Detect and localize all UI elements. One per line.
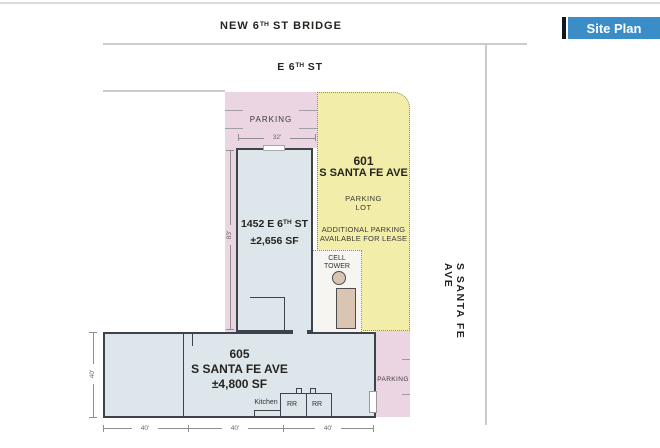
b1452-interior-wall-h [250,297,285,298]
top-border-line [0,2,660,4]
b1452-address-text2: ST [292,218,308,230]
dim-tick [188,425,189,432]
rr2-label: RR [309,401,325,409]
e6th-label-sup: TH [295,62,304,69]
right-parking-label-text: PARKING [377,376,409,383]
cell-tower-label2: TOWER [313,263,361,271]
right-parking-label: PARKING [376,376,410,383]
top-parking-label: PARKING [225,115,317,124]
lot-601-use1: PARKING [317,194,410,203]
kitchen-wall-h [254,410,281,411]
kitchen-label-text: Kitchen [254,399,277,406]
rr-door-notch [296,388,302,393]
dim-bottom-3-text: 40' [324,425,332,432]
e6th-street-line [103,90,225,92]
b605-wall-stub [192,334,193,346]
dim-label-32: 32' [264,134,290,142]
right-parking-zone [376,331,410,417]
building-1452-label: 1452 E 6TH ST ±2,656 SF [236,218,313,248]
parking-stall-line [299,110,317,111]
top-parking-label-text: PARKING [250,115,292,124]
cell-tower-circle [332,271,346,285]
dim-label-83: 83' [226,225,234,245]
kitchen-wall-v2 [254,410,255,418]
lot-601-note2: AVAILABLE FOR LEASE [317,234,410,243]
site-plan-page: NEW 6TH ST BRIDGE Site Plan E 6TH ST PAR… [0,0,660,448]
dim-label-40-left: 40' [89,364,97,384]
bridge-street-label-sup: TH [260,21,269,28]
lot-601-text-block: 601 S SANTA FE AVE PARKING LOT ADDITIONA… [317,155,410,243]
e6th-street-label: E 6TH ST [250,61,350,73]
dim-tick [89,417,97,418]
bridge-street-label: NEW 6TH ST BRIDGE [159,20,403,32]
parking-stall-line [225,128,243,129]
bridge-line [103,43,527,45]
dim-tick [89,332,97,333]
lot-601-address1: 601 [317,155,410,167]
rr2-label-text: RR [312,401,322,408]
bridge-street-label-text2: ST BRIDGE [269,20,342,32]
parking-stall-line [402,359,410,360]
bridge-street-label-text: NEW 6 [220,20,260,32]
dim-tick [226,150,234,151]
lot-601-note1: ADDITIONAL PARKING [317,225,410,234]
b605-address2: S SANTA FE AVE [103,362,376,377]
building-605-label: 605 S SANTA FE AVE ±4,800 SF [103,347,376,392]
dim-bottom-2-text: 40' [231,425,239,432]
dim-label-bottom-2: 40' [222,425,248,433]
kitchen-label: Kitchen [249,399,283,407]
parking-stall-line [299,128,317,129]
building-passage-opening [293,329,307,335]
cell-tower-structure [336,288,356,329]
dim-40-left-text: 40' [89,370,96,378]
building-605-door [369,391,377,413]
dim-tick [238,134,239,141]
dim-label-bottom-1: 40' [132,425,158,433]
rr-right-wall [331,393,332,418]
b1452-address-sup: TH [283,219,292,226]
lot-601-address2: S SANTA FE AVE [317,167,410,180]
building-1452-door [263,145,285,151]
cell-tower-label1: CELL [313,255,361,263]
parking-stall-line [225,110,243,111]
dim-tick [103,425,104,432]
dim-label-bottom-3: 40' [315,425,341,433]
rr-divider-wall [306,393,307,418]
dim-tick [226,329,234,330]
site-plan-button-label: Site Plan [587,21,642,36]
b605-address1: 605 [103,347,376,362]
santa-fe-street-label: S SANTA FE AVE [442,263,466,355]
lot-601-use2: LOT [317,203,410,212]
b605-area: ±4,800 SF [103,377,376,392]
rr1-label-text: RR [287,401,297,408]
e6th-label-text: E 6 [277,61,295,73]
santa-fe-street-line [485,43,487,425]
dim-32-text: 32' [273,134,281,141]
b1452-area: ±2,656 SF [236,235,313,248]
dim-83-text: 83' [226,231,233,239]
dim-tick [283,425,284,432]
dim-tick [315,134,316,141]
santa-fe-street-label-text: S SANTA FE AVE [442,263,466,339]
e6th-label-text2: ST [304,61,323,73]
site-plan-button[interactable]: Site Plan [568,17,660,39]
dim-bottom-1-text: 40' [141,425,149,432]
b1452-address-text: 1452 E 6 [241,218,283,230]
dim-tick [373,425,374,432]
rr1-label: RR [284,401,300,409]
parking-stall-line [402,394,410,395]
site-plan-button-bar [562,17,566,39]
rr-door-notch [310,388,316,393]
